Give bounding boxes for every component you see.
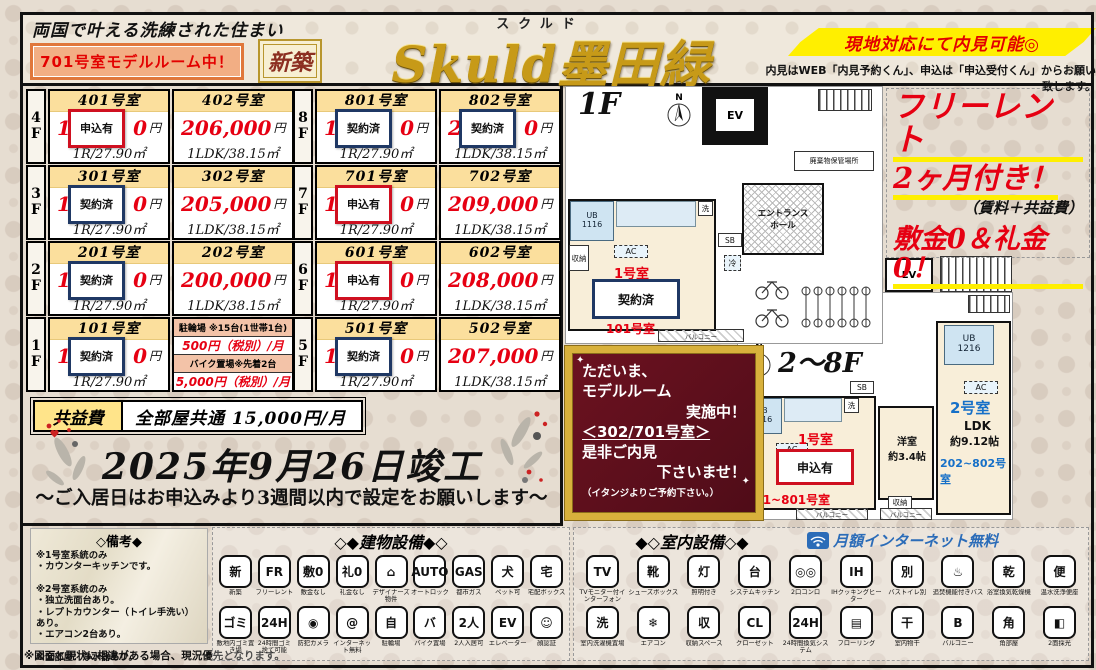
model-line3: 実施中！ [582,402,746,422]
room-number: 702号室 [441,167,559,188]
price-value: 200,000 [181,268,271,292]
yen-unit: 円 [149,119,161,136]
price-row: 2F201号室130契約済円1R/27.90㎡202号室200,000円1LDK… [26,241,298,316]
remark-line: ・エアコン2台あり。 [36,629,202,640]
remarks-title: ◇備考◆ [36,531,202,550]
elevator-icon: EV [491,606,524,639]
yen-unit: 円 [273,195,285,212]
tv-monitor-intercom-icon: TV [586,555,619,588]
pets-allowed-icon: 犬 [491,555,524,588]
model-line2: モデルルーム [582,381,746,401]
plan-1f-label: 1F [578,87,620,122]
status-badge: 契約済 [68,185,125,224]
equipment-item: 新新築 [216,555,255,604]
status-badge-contracted: 契約済 [592,279,680,319]
storage-space-icon: 収 [687,606,720,639]
equipment-label: 温水洗浄便座 [1041,589,1079,604]
equipment-label: フリーレント [255,589,293,604]
waste-storage-label: 廃棄物保管場所 [794,151,874,171]
bike-parking-price: 5,000円（税別）/月 [174,373,292,390]
shoebox-sb-label: SB [850,381,874,394]
equipment-label: 宅配ボックス [528,589,566,604]
room-price: 209,000円 [441,188,559,219]
equipment-label: 2人入居可 [454,640,483,655]
equipment-label: TVモニター付インターフォン [577,589,628,604]
equipment-item: ◎◎2口コンロ [780,555,831,604]
separate-bath-toilet-icon: 別 [891,555,924,588]
price-value: 209,000 [448,192,538,216]
ih-cooking-heater-icon: IH [840,555,873,588]
air-conditioner-icon: ❄ [637,606,670,639]
western-room-label: 洋室 約3.4帖 [884,433,930,463]
promo-box: フリーレント 2ヶ月付き！ （賃料＋共益費） 敷金0＆礼金0！ [886,88,1090,258]
floor-label: 5F [293,317,313,392]
price-value: 207,000 [448,344,538,368]
equipment-label: 収納スペース [685,640,722,655]
room-cell: 502号室207,000円1LDK/38.15㎡ [439,317,561,392]
unit101-label: 101号室 [606,320,655,337]
price-row: 6F601号室140申込有円1R/27.90㎡602号室208,000円1LDK… [293,241,565,316]
bicycle-parking-icons [748,275,878,339]
designer-property-icon: ⌂ [375,555,408,588]
no-key-money-icon: 礼0 [336,555,369,588]
equipment-item: ❄エアコン [628,606,679,655]
equipment-label: 敷地内ゴミ置き場 [216,640,255,655]
refrigerator-label: 冷 [724,255,741,271]
equipment-label: エアコン [641,640,666,655]
balcony-icon: B [941,606,974,639]
security-camera-icon: ◉ [297,606,330,639]
dual-aspect-lighting-icon: ◧ [1043,606,1076,639]
stairs-icon [968,295,1010,313]
equipment-label: バルコニー [942,640,973,655]
model-room-numbers: ＜302/701号室＞ [582,422,746,442]
equipment-item: CLクローゼット [729,606,780,655]
status-badge-applied: 申込有 [776,449,854,485]
equipment-label: 浴室換気乾燥機 [987,589,1031,604]
wifi-icon [807,532,829,549]
price-value: 206,000 [181,116,271,140]
entrance-hall: エントランス ホール [742,183,824,255]
room-price: 140申込有円 [317,188,435,219]
price-fragment-right: 0 [133,116,147,140]
indoor-equipment-box: ◆◇室内設備◇◆ 月額インターネット無料 TVTVモニター付インターフォン靴シュ… [573,527,1089,661]
equipment-label: 駐輪場 [382,640,401,655]
remark-line: ・独立洗面台あり。 [36,595,202,606]
equipment-label: 照明付き [691,589,716,604]
equipment-item: IHIHクッキングヒーター [831,555,882,604]
price-fragment-right: 0 [400,116,414,140]
room-price: 140申込有円 [317,264,435,295]
move-in-note: ～ご入居日はお申込みより3週間以内で設定をお願いします～ [23,484,560,510]
storage-label: 収納 [569,245,589,271]
shoebox-sb-label: SB [718,233,742,247]
price-panel: 4F401号室140申込有円1R/27.90㎡402号室206,000円1LDK… [20,86,563,526]
floor-label: 4F [26,89,46,164]
equipment-item: 便温水洗浄便座 [1034,555,1085,604]
washer-label: 洗 [844,398,859,413]
model-line6: 下さいませ！ [582,462,746,482]
balcony-label: バルコニー [796,508,868,520]
yen-unit: 円 [416,347,428,364]
price-row: 3F301号室140契約済円1R/27.90㎡302号室205,000円1LDK… [26,165,298,240]
sparkle-icon: ✦ [742,476,750,487]
equipment-label: IHクッキングヒーター [831,589,882,604]
floor-label: 7F [293,165,313,240]
room-price: 205,000円 [174,188,292,219]
ldk-size-label: 約9.12帖 [950,433,999,449]
room-cell: 702号室209,000円1LDK/38.15㎡ [439,165,561,240]
price-fragment-right: 0 [400,192,414,216]
svg-text:N: N [675,93,683,103]
room-cell: 401号室140申込有円1R/27.90㎡ [48,89,170,164]
building-equipment-box: ◇◆建物設備◆◇ 新新築FRフリーレント敷0敷金なし礼0礼金なし⌂デザイナーズ物… [212,527,570,661]
equipment-label: 角部屋 [999,640,1018,655]
equipment-item: 自駐輪場 [372,606,411,655]
equipment-item: 乾浴室換気乾燥機 [983,555,1034,604]
room-layout: 1LDK/38.15㎡ [441,295,559,315]
equipment-item: 干室内物干 [882,606,933,655]
equipment-item: GAS都市ガス [449,555,488,604]
equipment-item: @インターネット無料 [333,606,372,655]
lighting-icon: 灯 [687,555,720,588]
room-number: 402号室 [174,91,292,112]
equipment-item: 礼0礼金なし [333,555,372,604]
ac-label: AC [614,245,648,258]
yen-unit: 円 [149,195,161,212]
remarks-box: ◇備考◆ ※1号室系統のみ・カウンターキッチンです。 ※2号室系統のみ・独立洗面… [30,528,208,644]
price-fragment-right: 0 [133,344,147,368]
equipment-label: 2面採光 [1048,640,1071,655]
completion-date: 2025年9月26日竣工 [23,438,560,490]
status-badge: 申込有 [335,261,392,300]
room-price: 210契約済円 [441,112,559,143]
equipment-item: EVエレベーター [488,606,527,655]
price-row: 4F401号室140申込有円1R/27.90㎡402号室206,000円1LDK… [26,89,298,164]
equipment-label: インターネット無料 [333,640,372,655]
equipment-item: 灯照明付き [679,555,730,604]
equipment-item: 敷0敷金なし [294,555,333,604]
yen-unit: 円 [540,347,552,364]
water-fixtures [784,398,842,422]
equipment-item: ☺顔認証 [527,606,566,655]
status-badge: 申込有 [335,185,392,224]
indoor-clothes-drying-icon: 干 [891,606,924,639]
equipment-label: クローゼット [736,640,774,655]
bicycle-parking-icon: 自 [375,606,408,639]
equipment-label: シューズボックス [628,589,678,604]
model-line5: 是非ご内見 [582,442,746,462]
equipment-item: 24H24時間換気システム [780,606,831,655]
equipment-label: 室内物干 [895,640,920,655]
washer-label: 洗 [698,201,713,216]
sparkle-icon: ✦ [576,355,584,366]
unit-bath-ub1116: UB 1116 [570,201,614,241]
unit2-label: 2号室 [950,397,990,418]
ldk-label: LDK [964,419,991,433]
equipment-item: AUTOオートロック [410,555,449,604]
indoor-equipment-row1: TVTVモニター付インターフォン靴シューズボックス灯照明付き台システムキッチン◎… [574,553,1088,604]
room-cell: 202号室200,000円1LDK/38.15㎡ [172,241,294,316]
room-cell: 801号室140契約済円1R/27.90㎡ [315,89,437,164]
zero-deposit-line: 敷金0＆礼金0！ [893,226,1083,289]
equipment-label: フローリング [837,640,875,655]
yen-unit: 円 [416,271,428,288]
delivery-box-icon: 宅 [530,555,563,588]
onsite-viewing-highlight: 現地対応にて内見可能◎ [788,28,1096,56]
model-line1: ただいま、 [582,361,746,381]
equipment-item: 別バストイレ別 [882,555,933,604]
tagline: 両国で叶える洗練された住まい [32,16,284,41]
free-internet-icon: @ [336,606,369,639]
equipment-item: ♨追焚機能付きバス [933,555,984,604]
corner-room-icon: 角 [992,606,1025,639]
room-price: 200,000円 [174,264,292,295]
equipment-item: 洗室内洗濯機置場 [577,606,628,655]
equipment-label: ペット可 [495,589,520,604]
building-equipment-row1: 新新築FRフリーレント敷0敷金なし礼0礼金なし⌂デザイナーズ物件AUTOオートロ… [213,553,569,604]
model-booking-note: （イタンジよりご予約下さい。） [582,485,746,499]
equipment-label: 室内洗濯機置場 [580,640,624,655]
yen-unit: 円 [416,195,428,212]
new-construction-badge: 新築 [258,39,322,83]
room-layout: 1LDK/38.15㎡ [441,371,559,391]
remarks-lines: ※1号室系統のみ・カウンターキッチンです。 ※2号室系統のみ・独立洗面台あり。・… [36,550,202,663]
auto-lock-icon: AUTO [413,555,446,588]
model-room-badge: 701号室モデルルーム中！ [30,43,244,80]
status-badge: 申込有 [68,109,125,148]
equipment-item: ⌂デザイナーズ物件 [372,555,411,604]
room-number: 502号室 [441,319,559,340]
equipment-label: 防犯カメラ [297,640,328,655]
room-cell: 601号室140申込有円1R/27.90㎡ [315,241,437,316]
face-recognition-icon: ☺ [530,606,563,639]
equipment-item: 収収納スペース [679,606,730,655]
onsite-garbage-area-icon: ゴミ [219,606,252,639]
room-cell: 402号室206,000円1LDK/38.15㎡ [172,89,294,164]
yen-unit: 円 [540,271,552,288]
equipment-item: 角角部屋 [983,606,1034,655]
equipment-label: 敷金なし [301,589,326,604]
room-cell: 201号室130契約済円1R/27.90㎡ [48,241,170,316]
room-cell: 501号室140契約済円1R/27.90㎡ [315,317,437,392]
indoor-washer-space-icon: 洗 [586,606,619,639]
compass-icon: N [664,91,694,131]
status-badge: 契約済 [335,109,392,148]
status-badge: 契約済 [68,337,125,376]
equipment-item: ゴミ敷地内ゴミ置き場 [216,606,255,655]
equipment-label: 2口コンロ [791,589,820,604]
equipment-item: ◧2面採光 [1034,606,1085,655]
elevator-1f: EV [714,97,756,133]
free-rent-line2: 2ヶ月付き！ [893,163,1058,199]
bathroom-ventilation-dryer-icon: 乾 [992,555,1025,588]
room-number: 602号室 [441,243,559,264]
equipment-item: 宅宅配ボックス [527,555,566,604]
unit1-label: 1号室 [798,429,833,448]
price-fragment-right: 0 [133,268,147,292]
remark-line: ※1号室系統のみ [36,550,202,561]
equipment-label: 礼金なし [340,589,365,604]
24h-ventilation-system-icon: 24H [789,606,822,639]
room-layout: 1LDK/38.15㎡ [174,295,292,315]
room-price: 140申込有円 [50,112,168,143]
floor-label: 3F [26,165,46,240]
price-fragment-right: 0 [400,268,414,292]
equipment-label: 都市ガス [456,589,481,604]
equipment-label: バイク置場 [414,640,445,655]
room-cell: 701号室140申込有円1R/27.90㎡ [315,165,437,240]
price-row: 5F501号室140契約済円1R/27.90㎡502号室207,000円1LDK… [293,317,565,392]
equipment-item: 台システムキッチン [729,555,780,604]
price-fragment-right: 0 [133,192,147,216]
room-price: 206,000円 [174,112,292,143]
two-burner-stove-icon: ◎◎ [789,555,822,588]
room-cell: 301号室140契約済円1R/27.90㎡ [48,165,170,240]
washlet-toilet-icon: 便 [1043,555,1076,588]
equipment-label: デザイナーズ物件 [372,589,411,604]
building-equipment-title: ◇◆建物設備◆◇ [213,528,569,553]
unit-bath-ub1216: UB 1216 [944,325,994,365]
reheating-bath-icon: ♨ [941,555,974,588]
equipment-item: TVTVモニター付インターフォン [577,555,628,604]
floor-label: 1F [26,317,46,392]
room-price: 140契約済円 [317,112,435,143]
equipment-item: ◉防犯カメラ [294,606,333,655]
free-rent-line1: フリーレント [893,91,1083,162]
room-number: 302号室 [174,167,292,188]
price-table-left: 4F401号室140申込有円1R/27.90㎡402号室206,000円1LDK… [26,89,298,393]
24h-garbage-disposal-icon: 24H [258,606,291,639]
room-price: 207,000円 [441,340,559,371]
room-price: 140契約済円 [317,340,435,371]
model-room-announcement: ✦ ✦ ただいま、 モデルルーム 実施中！ ＜302/701号室＞ 是非ご内見 … [565,346,763,520]
equipment-item: 犬ペット可 [488,555,527,604]
yen-unit: 円 [273,271,285,288]
unit2-room-range: 202~802号室 [940,455,1012,487]
balcony-label: バルコニー [658,329,744,342]
price-fragment-right: 0 [400,344,414,368]
floor-label: 6F [293,241,313,316]
yen-unit: 円 [273,119,285,136]
price-value: 205,000 [181,192,271,216]
price-row: 7F701号室140申込有円1R/27.90㎡702号室209,000円1LDK… [293,165,565,240]
price-table-right: 8F801号室140契約済円1R/27.90㎡802号室210契約済円1LDK/… [293,89,565,393]
floor-label: 2F [26,241,46,316]
bicycle-parking-price: 500円（税別）/月 [174,337,292,355]
indoor-equipment-title: ◆◇室内設備◇◆ [582,528,802,553]
bicycle-parking-header: 駐輪場 ※15台(1世帯1台) [174,319,292,337]
equipment-label: 24時間換気システム [780,640,831,655]
yen-unit: 円 [416,119,428,136]
room-price: 140契約済円 [50,188,168,219]
room-layout: 1LDK/38.15㎡ [174,143,292,163]
equipment-item: 24H24時間ゴミ捨て可能 [255,606,294,655]
status-badge: 契約済 [459,109,516,148]
room-price: 130契約済円 [50,340,168,371]
equipment-label: 追焚機能付きバス [933,589,983,604]
equipment-item: ババイク置場 [410,606,449,655]
room-cell: 802号室210契約済円1LDK/38.15㎡ [439,89,561,164]
floor-label: 8F [293,89,313,164]
internet-free-note: 月額インターネット無料 [807,528,998,551]
equipment-item: 2人2人入居可 [449,606,488,655]
room-cell: 101号室130契約済円1R/27.90㎡ [48,317,170,392]
remark-line: ※2号室系統のみ [36,584,202,595]
equipment-label: 24時間ゴミ捨て可能 [255,640,294,655]
price-value: 208,000 [448,268,538,292]
remark-line [36,573,202,584]
equipment-label: システムキッチン [730,589,780,604]
price-row: 1F101号室130契約済円1R/27.90㎡駐輪場 ※15台(1世帯1台)50… [26,317,298,392]
yen-unit: 円 [149,347,161,364]
parking-cell: 駐輪場 ※15台(1世帯1台)500円（税別）/月バイク置場※先着2台5,000… [172,317,294,392]
room-cell: 602号室208,000円1LDK/38.15㎡ [439,241,561,316]
equipment-item: 靴シューズボックス [628,555,679,604]
equipment-label: エレベーター [489,640,527,655]
equipment-item: FRフリーレント [255,555,294,604]
room-price: 208,000円 [441,264,559,295]
room-layout: 1LDK/38.15㎡ [441,219,559,239]
status-badge: 契約済 [335,337,392,376]
two-person-occupancy-icon: 2人 [452,606,485,639]
common-fee-value: 全部屋共通 15,000円/月 [123,402,361,430]
bike-parking-header: バイク置場※先着2台 [174,355,292,373]
system-kitchen-icon: 台 [738,555,771,588]
plan-2-8f-label: 2～8F [778,341,862,380]
equipment-label: オートロック [411,589,449,604]
equipment-label: バストイレ別 [888,589,926,604]
closet-icon: CL [738,606,771,639]
yen-unit: 円 [540,195,552,212]
yen-unit: 円 [540,119,552,136]
motorbike-parking-icon: バ [413,606,446,639]
yen-unit: 円 [149,271,161,288]
remark-line: ・カウンターキッチンです。 [36,561,202,572]
indoor-equipment-row2: 洗室内洗濯機置場❄エアコン収収納スペースCLクローゼット24H24時間換気システ… [574,604,1088,655]
equipment-label: 新築 [229,589,242,604]
stairs-icon [818,89,872,111]
equipment-label: 顔認証 [537,640,556,655]
city-gas-icon: GAS [452,555,485,588]
water-fixtures [616,201,696,227]
equipment-item: Bバルコニー [933,606,984,655]
no-deposit-icon: 敷0 [297,555,330,588]
free-rent-note: （賃料＋共益費） [893,201,1083,217]
status-badge: 契約済 [68,261,125,300]
price-fragment-right: 0 [524,116,538,140]
room-cell: 302号室205,000円1LDK/38.15㎡ [172,165,294,240]
equipment-item: ▤フローリング [831,606,882,655]
price-row: 8F801号室140契約済円1R/27.90㎡802号室210契約済円1LDK/… [293,89,565,164]
room-layout: 1LDK/38.15㎡ [174,219,292,239]
room-price: 130契約済円 [50,264,168,295]
shoe-box-icon: 靴 [637,555,670,588]
ac-label-2: AC [964,381,998,394]
building-equipment-row2: ゴミ敷地内ゴミ置き場24H24時間ゴミ捨て可能◉防犯カメラ@インターネット無料自… [213,604,569,655]
header-band: 両国で叶える洗練された住まい 701号室モデルルーム中！ 新築 スクルド Sku… [20,12,1094,86]
remark-line: ・レプトカウンター（トイレ手洗い）あり。 [36,607,202,630]
real-estate-flyer: 両国で叶える洗練された住まい 701号室モデルルーム中！ 新築 スクルド Sku… [0,0,1096,670]
flooring-icon: ▤ [840,606,873,639]
balcony-label-2: バルコニー [880,508,932,520]
new-construction-icon: 新 [219,555,252,588]
room-number: 202号室 [174,243,292,264]
floorplan-1f: 1F N EV 廃棄物保管場所 エントランス ホール UB 1116 洗 収納 … [565,86,883,344]
free-rent-icon: FR [258,555,291,588]
